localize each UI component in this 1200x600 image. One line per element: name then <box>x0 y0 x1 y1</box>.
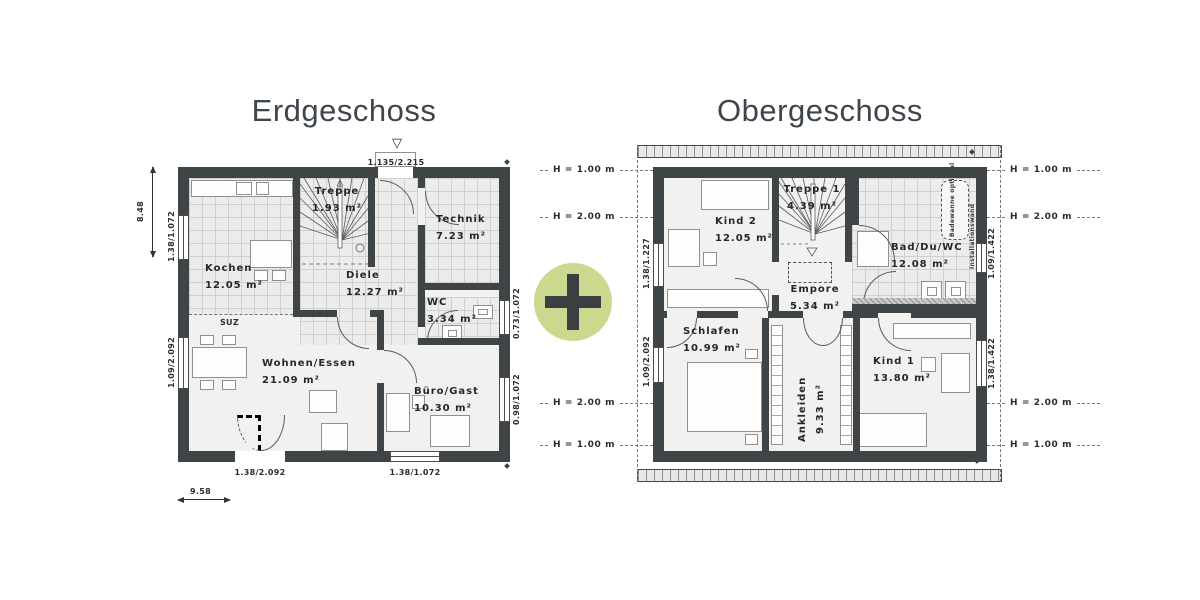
dresser <box>667 289 769 308</box>
room-area: 12.05 m² <box>205 280 263 291</box>
desk <box>941 353 970 393</box>
room-name: Technik <box>436 214 486 225</box>
dresser <box>893 323 971 339</box>
room-name: WC <box>427 297 447 308</box>
chair <box>222 380 236 390</box>
obergeschoss-title: Obergeschoss <box>653 92 987 129</box>
wall-technik-bottom <box>418 283 499 290</box>
wall-bath-left <box>852 178 859 225</box>
entry-door-opening <box>378 167 413 178</box>
wall-technik-left <box>418 178 425 188</box>
dining-table <box>192 347 247 378</box>
wall-living-office <box>377 310 384 350</box>
floorplan-canvas: { "colors": { "accent_green": "#cbd88e",… <box>0 0 1200 600</box>
wall-schlafen-ankleiden <box>762 318 769 451</box>
wall-living-office <box>377 383 384 451</box>
window <box>178 215 189 260</box>
room-label-wc: WC3.34 m² <box>427 294 477 328</box>
dim-total-width: 9.58 <box>190 487 211 496</box>
nightstand <box>745 434 758 445</box>
room-label-treppe: Treppe1.93 m² <box>304 183 370 217</box>
room-area: 4.39 m² <box>787 201 837 212</box>
room-name: Diele <box>346 270 380 281</box>
gallery-void-outline <box>788 262 832 283</box>
chair <box>200 335 214 345</box>
height-label: H = 1.00 m <box>1007 164 1075 176</box>
wall-north <box>178 167 510 178</box>
dim-window: 1.09/2.092 <box>642 343 651 387</box>
window <box>499 300 510 335</box>
wall-diele-living <box>293 310 337 317</box>
room-label-diele: Diele12.27 m² <box>346 267 404 301</box>
dim-window: 1.38/1.072 <box>385 468 445 477</box>
room-area: 10.99 m² <box>683 343 741 354</box>
room-name: Bad/Du/WC <box>891 242 963 253</box>
wall-middle-band <box>911 311 976 318</box>
room-area: 1.93 m² <box>312 203 362 214</box>
nightstand <box>745 349 758 359</box>
wall-middle-band <box>843 311 878 318</box>
wall-technik-left <box>418 225 425 290</box>
wall-west <box>178 167 189 462</box>
dim-entry-door: 1.135/2.215 <box>360 158 432 167</box>
wall-stub <box>370 310 377 317</box>
room-area: 12.08 m² <box>891 259 949 270</box>
chair <box>222 335 236 345</box>
dim-total-depth: 8.48 <box>136 187 145 237</box>
dim-window: 1.38/1.422 <box>987 337 996 390</box>
wall-kitchen-stair <box>293 178 300 317</box>
obergeschoss-plan: H = 1.00 m H = 2.00 m H = 2.00 m H = 1.0… <box>653 167 987 462</box>
wall-middle-band <box>697 311 738 318</box>
roof-boundary-line <box>1000 145 1001 482</box>
window <box>653 243 664 287</box>
wall-stair-bath <box>845 178 852 262</box>
window <box>390 451 440 462</box>
window <box>499 377 510 422</box>
room-area: 12.05 m² <box>715 233 773 244</box>
room-name: Schlafen <box>683 326 740 337</box>
height-label: H = 2.00 m <box>1007 397 1075 409</box>
window <box>653 347 664 383</box>
room-label-empore: Empore5.34 m² <box>785 281 845 315</box>
room-area: 13.80 m² <box>873 373 931 384</box>
height-label: H = 2.00 m <box>550 397 618 409</box>
dim-window: 1.09/1.422 <box>987 237 996 279</box>
room-area: 9.33 m² <box>815 384 826 434</box>
room-name: Empore <box>791 284 840 295</box>
plus-icon <box>534 263 612 341</box>
wall-east <box>976 167 987 462</box>
erdgeschoss-plan: SUZ Kochen12.05 m² Treppe1.93 m² Technik… <box>178 167 510 462</box>
room-label-kind2: Kind 212.05 m² <box>715 213 773 247</box>
height-label: H = 1.00 m <box>1007 439 1075 451</box>
height-label: H = 2.00 m <box>1007 211 1075 223</box>
wall-west <box>653 167 664 462</box>
room-label-kochen: Kochen12.05 m² <box>205 260 263 294</box>
corner-marker <box>504 159 510 165</box>
suz-label: SUZ <box>220 318 239 327</box>
window <box>976 243 987 273</box>
closet-rail <box>840 325 852 445</box>
wardrobe <box>668 229 700 267</box>
basin-bowl <box>951 287 961 296</box>
dim-window: 1.09/2.092 <box>167 335 176 391</box>
toilet-bowl <box>448 330 457 337</box>
room-label-ankleiden: Ankleiden9.33 m² <box>794 363 830 455</box>
window <box>976 340 987 387</box>
stool <box>272 270 286 281</box>
room-name: Büro/Gast <box>414 386 479 397</box>
double-bed <box>687 362 762 432</box>
dim-door: 1.38/2.092 <box>230 468 290 477</box>
width-arrow <box>178 499 230 500</box>
desk <box>386 393 410 432</box>
basin-bowl <box>478 309 488 315</box>
room-label-buero: Büro/Gast10.30 m² <box>414 383 479 417</box>
room-label-schlafen: Schlafen10.99 m² <box>683 323 741 357</box>
terrace-door-opening <box>235 451 285 462</box>
room-name: Treppe 1 <box>784 184 841 195</box>
room-label-technik: Technik7.23 m² <box>436 211 486 245</box>
dim-window: 1.38/1.227 <box>642 241 651 289</box>
suz-partition-line <box>189 314 293 315</box>
guest-bed <box>430 415 470 447</box>
erdgeschoss-title: Erdgeschoss <box>178 92 510 129</box>
room-label-bad: Bad/Du/WC12.08 m² <box>891 239 963 273</box>
wall-middle-band <box>664 311 667 318</box>
room-name: Wohnen/Essen <box>262 358 356 369</box>
wall-wc-bottom <box>418 338 499 345</box>
chair <box>703 252 717 266</box>
wall-north <box>653 167 987 178</box>
window <box>178 337 189 389</box>
room-name: Treppe <box>315 186 360 197</box>
chair <box>200 380 214 390</box>
stove <box>236 182 252 195</box>
room-area: 21.09 m² <box>262 375 320 386</box>
wall-wc-left <box>418 290 425 327</box>
bed <box>701 180 769 210</box>
dim-window: 0.73/1.072 <box>512 296 521 339</box>
wall-ankleiden-kind1 <box>853 318 860 451</box>
bathtub-note: Badewanne optional <box>948 185 957 237</box>
room-name: Kind 2 <box>715 216 757 227</box>
optional-bathtub: Badewanne optional <box>941 180 969 240</box>
room-area: 5.34 m² <box>790 301 840 312</box>
sink <box>256 182 269 195</box>
room-area: 10.30 m² <box>414 403 472 414</box>
roof-overhang-top <box>637 145 1002 158</box>
corner-marker <box>504 463 510 469</box>
dim-window: 0.98/1.072 <box>512 373 521 426</box>
shower <box>857 231 889 267</box>
height-label: H = 1.00 m <box>550 439 618 451</box>
dim-window: 1.38/1.072 <box>167 213 176 262</box>
entry-marker-icon: ▽ <box>392 137 402 150</box>
depth-arrow <box>152 167 153 257</box>
wall-kind2-stair <box>772 178 779 262</box>
wall-south <box>178 451 510 462</box>
room-label-kind1: Kind 113.80 m² <box>873 353 931 387</box>
bed <box>859 413 927 447</box>
basin-bowl <box>927 287 937 296</box>
room-area: 3.34 m² <box>427 314 477 325</box>
room-name: Kind 1 <box>873 356 915 367</box>
room-area: 12.27 m² <box>346 287 404 298</box>
room-name: Kochen <box>205 263 252 274</box>
closet-rail <box>771 325 783 445</box>
room-area: 7.23 m² <box>436 231 486 242</box>
plus-bar-vertical <box>567 274 579 330</box>
roof-overhang-bottom <box>637 469 1002 482</box>
sofa <box>321 423 348 451</box>
sideboard <box>309 390 337 413</box>
height-label: H = 1.00 m <box>550 164 618 176</box>
room-label-treppe1: Treppe 14.39 m² <box>779 181 845 215</box>
room-name: Ankleiden <box>797 376 808 441</box>
room-label-wohnen: Wohnen/Essen21.09 m² <box>262 355 356 389</box>
roof-boundary-line <box>637 145 638 482</box>
height-label: H = 2.00 m <box>550 211 618 223</box>
